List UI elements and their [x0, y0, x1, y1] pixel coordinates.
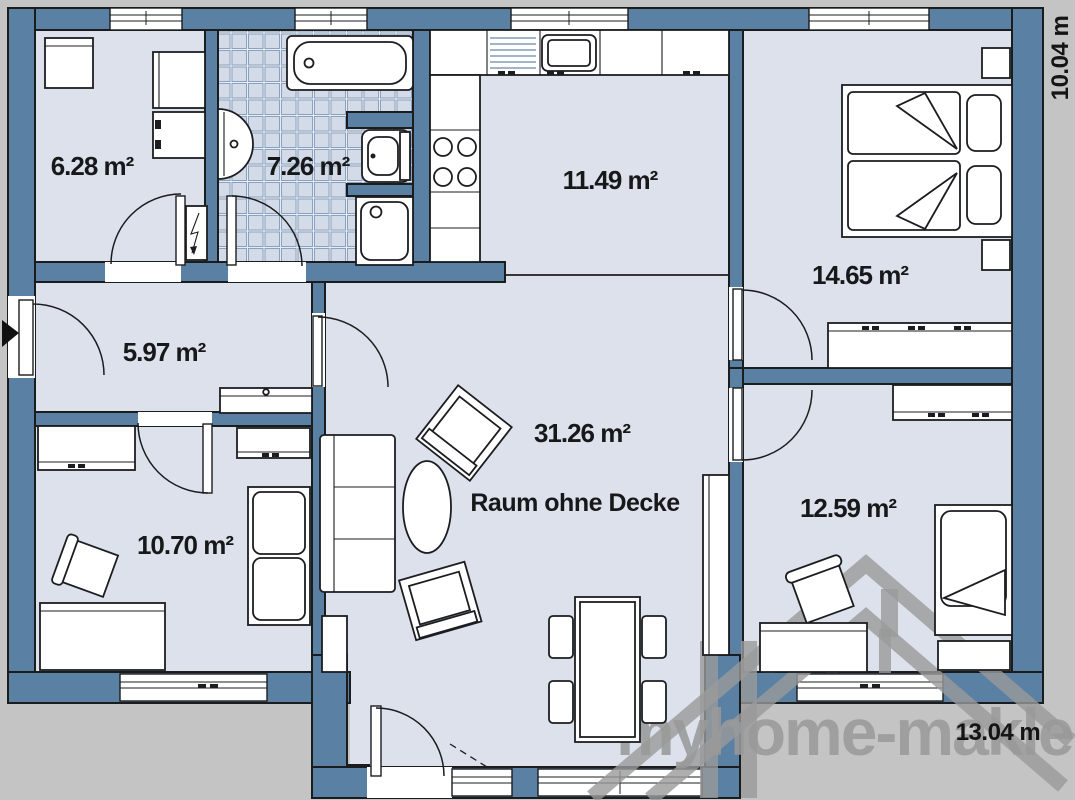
vertical-dimension-label: 10.04 m	[1047, 16, 1074, 101]
room-bottom-left-area-label: 10.70 m²	[137, 530, 234, 560]
wall-bath-kitchen	[413, 30, 430, 262]
living-room-note-label: Raum ohne Decke	[470, 489, 680, 517]
dining-chair	[549, 681, 573, 723]
utility-shelf-lower	[153, 112, 205, 158]
living-room-area-label: 31.26 m²	[534, 418, 631, 448]
sofa	[320, 435, 395, 592]
room-left-shelf	[237, 428, 310, 458]
electrical-panel	[186, 206, 207, 260]
coffee-table	[403, 461, 451, 553]
double-bed	[842, 85, 1012, 237]
bedside-table	[938, 641, 1010, 670]
kitchen-counter-left	[430, 75, 480, 262]
room-left-wardrobe	[38, 426, 135, 470]
room-right-bed	[935, 505, 1012, 670]
dining-table	[575, 597, 640, 742]
dining-chair	[549, 616, 573, 658]
toilet	[362, 130, 410, 182]
floor-plan: myhome-makler	[0, 0, 1075, 800]
floor-plan-drawing: myhome-makler	[0, 0, 1075, 800]
window-bottom-left	[120, 674, 267, 701]
window-top-2	[295, 8, 367, 30]
room-left-bed	[248, 487, 310, 625]
wall-bedroom-room-right	[743, 368, 1012, 384]
window-top-3	[511, 8, 628, 30]
window-top-1	[110, 8, 182, 30]
pillow	[967, 95, 1001, 151]
utility-shelf-upper	[153, 52, 205, 108]
wall-wc-niche-top	[347, 112, 413, 128]
bedroom-wardrobe	[828, 323, 1012, 368]
room-bottom-right-area-label: 12.59 m²	[800, 493, 897, 523]
tv-sideboard	[703, 475, 729, 655]
bathroom-area-label: 7.26 m²	[267, 151, 351, 181]
hallway-area-label: 5.97 m²	[123, 337, 207, 367]
dining-chair	[642, 681, 666, 723]
room-right-desk	[760, 623, 867, 672]
wall-wc-niche-bottom	[347, 184, 413, 196]
kitchen-counter-top	[430, 30, 729, 75]
bedroom-area-label: 14.65 m²	[812, 260, 909, 290]
horizontal-dimension-label: 13.04 m	[956, 719, 1041, 746]
living-chest	[322, 616, 347, 672]
hallway-sideboard	[220, 388, 312, 413]
kitchen-area-label: 11.49 m²	[563, 165, 659, 195]
nightstand	[982, 240, 1010, 270]
shower	[356, 197, 413, 265]
utility-room-area-label: 6.28 m²	[51, 151, 135, 181]
room-left-desk	[40, 603, 165, 670]
bathtub	[287, 36, 413, 90]
pillow	[967, 166, 1001, 224]
nightstand	[982, 48, 1010, 78]
window-top-4	[809, 8, 929, 30]
window-bay-1	[452, 769, 512, 796]
washing-machine	[45, 38, 93, 88]
room-right-wardrobe	[893, 385, 1012, 420]
dining-chair	[642, 616, 666, 658]
wall-right	[1012, 8, 1043, 703]
